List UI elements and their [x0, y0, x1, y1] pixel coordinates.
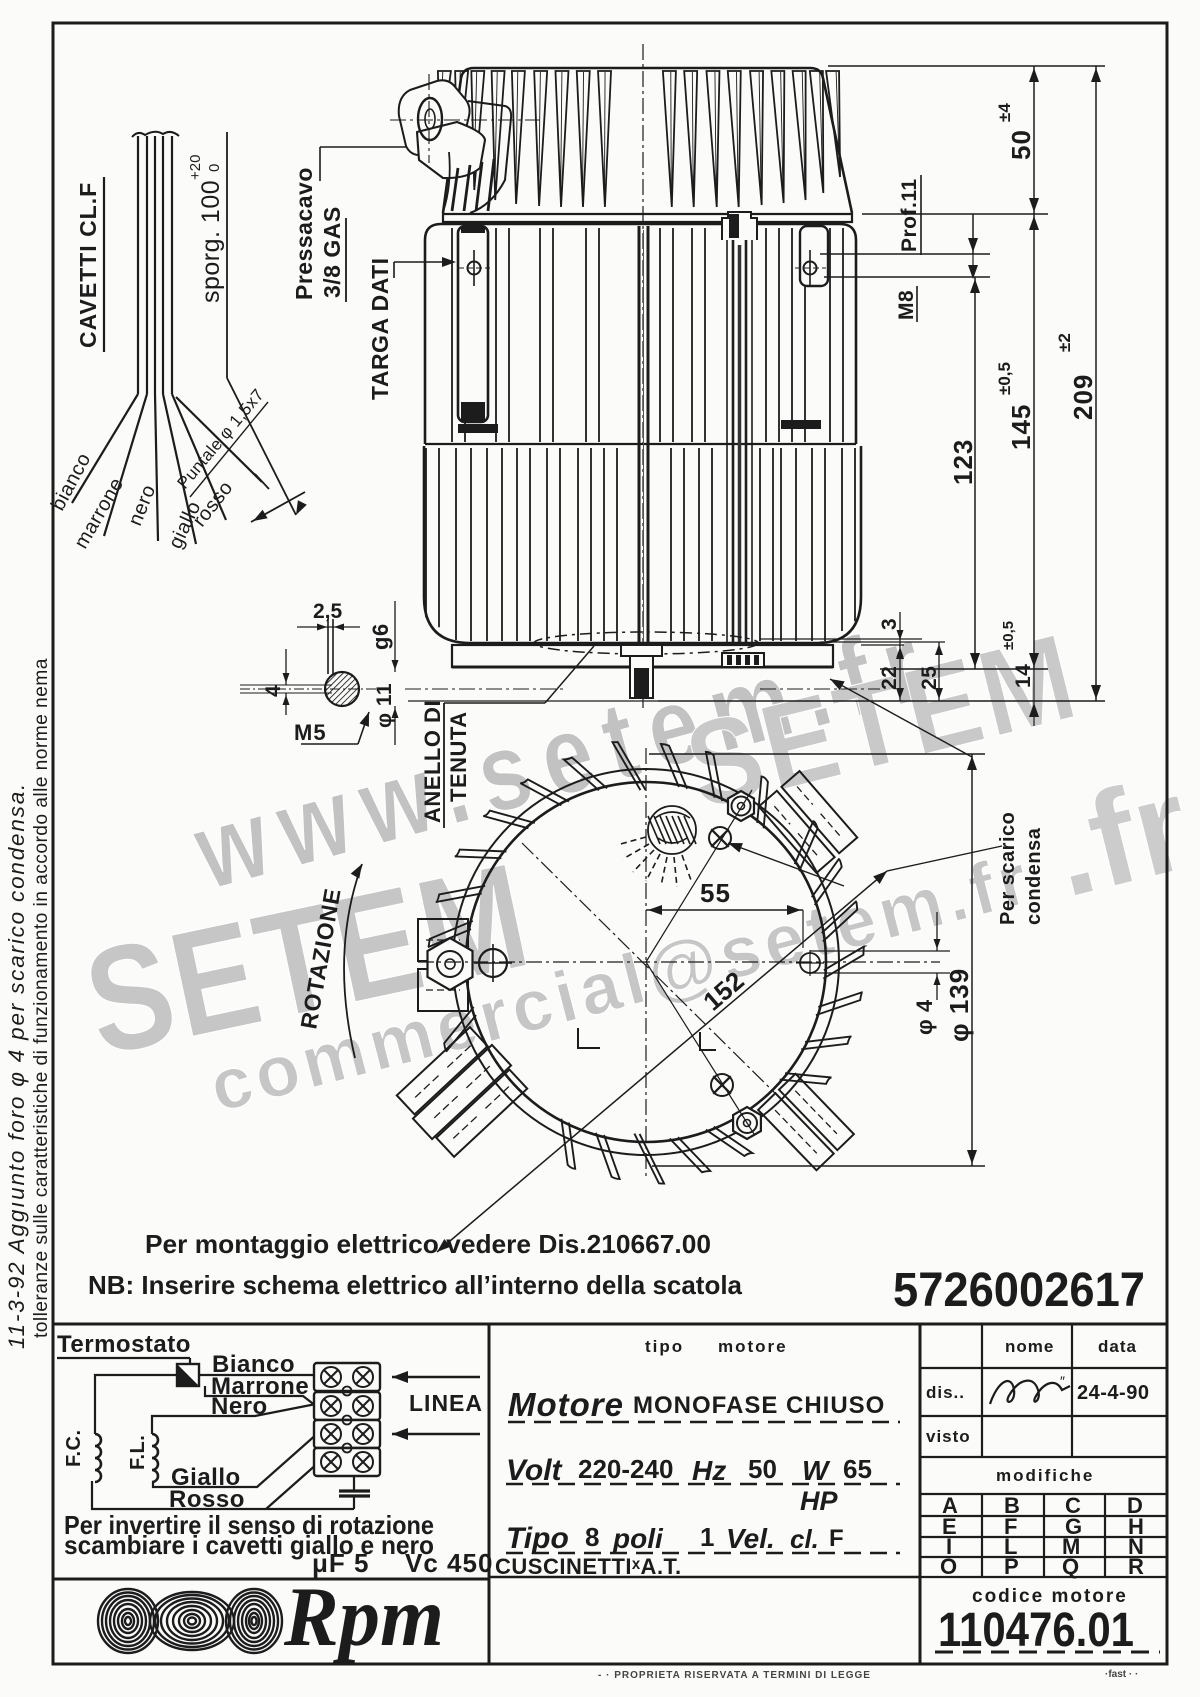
svg-text:CUSCINETTIˣA.T.: CUSCINETTIˣA.T. — [495, 1554, 682, 1579]
svg-text:145: 145 — [1006, 404, 1036, 450]
svg-text:φ 11: φ 11 — [373, 683, 396, 728]
svg-text:O: O — [940, 1554, 957, 1579]
svg-text:Hz: Hz — [692, 1455, 726, 1486]
svg-text:φ 139: φ 139 — [944, 968, 974, 1042]
svg-text:24-4-90: 24-4-90 — [1077, 1382, 1149, 1404]
svg-text:cl.: cl. — [790, 1524, 819, 1554]
svg-text:Termostato: Termostato — [57, 1331, 191, 1358]
svg-text:P: P — [1004, 1554, 1019, 1579]
svg-text:65: 65 — [843, 1454, 872, 1484]
svg-text:dis..: dis.. — [926, 1383, 965, 1402]
svg-text:HP: HP — [800, 1486, 838, 1516]
svg-text:LINEA: LINEA — [409, 1390, 483, 1416]
svg-text:1: 1 — [700, 1522, 714, 1552]
svg-text:condensa: condensa — [1023, 827, 1045, 925]
svg-text:±4: ±4 — [995, 103, 1014, 122]
svg-text:TENUTA: TENUTA — [446, 711, 471, 802]
svg-text:55: 55 — [700, 878, 731, 908]
svg-text:209: 209 — [1068, 374, 1098, 420]
svg-text:Volt: Volt — [506, 1454, 564, 1487]
svg-text:motore: motore — [718, 1337, 788, 1356]
svg-text:CAVETTI CL.F: CAVETTI CL.F — [75, 182, 101, 348]
svg-text:φ 4: φ 4 — [912, 999, 937, 1035]
svg-text:±0,5: ±0,5 — [1000, 621, 1017, 650]
svg-text:tolleranze sulle caratteristic: tolleranze sulle caratteristiche di funz… — [31, 658, 52, 1338]
svg-text:Tipo: Tipo — [506, 1522, 569, 1555]
svg-text:0: 0 — [206, 164, 223, 172]
svg-text:TARGA DATI: TARGA DATI — [367, 257, 393, 400]
svg-text:Motore: Motore — [508, 1386, 624, 1423]
svg-text:″: ″ — [1060, 1373, 1065, 1389]
svg-text:MONOFASE CHIUSO: MONOFASE CHIUSO — [633, 1392, 885, 1419]
svg-text:+20: +20 — [187, 155, 204, 180]
svg-text:M8: M8 — [895, 290, 918, 320]
svg-text:·fast · ·: ·fast · · — [1105, 1669, 1138, 1680]
svg-text:NB: Inserire schema elettrico: NB: Inserire schema elettrico all’intern… — [88, 1270, 743, 1300]
svg-text:Nero: Nero — [211, 1393, 268, 1420]
svg-text:tipo: tipo — [645, 1337, 684, 1356]
svg-text:sporg. 100: sporg. 100 — [197, 180, 225, 303]
svg-text:F.C.: F.C. — [63, 1429, 85, 1467]
svg-text:F: F — [829, 1525, 844, 1552]
svg-text:modifiche: modifiche — [996, 1466, 1094, 1485]
svg-text:Prof.11: Prof.11 — [898, 178, 921, 252]
svg-text:110476.01: 110476.01 — [938, 1604, 1134, 1657]
svg-text:Rpm: Rpm — [283, 1570, 444, 1664]
svg-text:±0,5: ±0,5 — [995, 362, 1014, 395]
svg-text:scambiare i cavetti giallo e n: scambiare i cavetti giallo e nero — [64, 1530, 434, 1560]
svg-text:22: 22 — [878, 666, 901, 690]
svg-text:±2: ±2 — [1055, 333, 1074, 352]
svg-text:M5: M5 — [294, 720, 327, 745]
svg-text:14: 14 — [1012, 664, 1035, 688]
svg-text:- · PROPRIETA RISERVATA A TE: - · PROPRIETA RISERVATA A TERMINI DI LEG… — [598, 1670, 871, 1681]
svg-text:Q: Q — [1062, 1554, 1079, 1579]
svg-text:Per scarico: Per scarico — [997, 812, 1019, 925]
svg-text:123: 123 — [948, 439, 978, 485]
svg-text:3/8 GAS: 3/8 GAS — [319, 206, 345, 298]
svg-text:50: 50 — [1006, 129, 1036, 160]
svg-text:Vel.: Vel. — [726, 1523, 775, 1554]
svg-text:nome: nome — [1005, 1337, 1054, 1356]
svg-text:data: data — [1098, 1337, 1137, 1356]
svg-text:F.L.: F.L. — [127, 1435, 149, 1470]
svg-text:ANELLO DI: ANELLO DI — [420, 700, 445, 823]
svg-text:2,5: 2,5 — [313, 600, 343, 623]
svg-text:25: 25 — [918, 666, 941, 690]
svg-text:220-240: 220-240 — [578, 1454, 673, 1484]
svg-text:poli: poli — [612, 1523, 664, 1554]
svg-text:R: R — [1128, 1554, 1144, 1579]
svg-text:4: 4 — [262, 685, 285, 697]
svg-text:W: W — [802, 1455, 831, 1486]
svg-text:visto: visto — [926, 1427, 971, 1446]
svg-text:g6: g6 — [368, 623, 393, 650]
svg-text:50: 50 — [748, 1454, 777, 1484]
svg-text:Rosso: Rosso — [169, 1486, 245, 1513]
svg-text:11-3-92 Aggıunto foro φ 4 per: 11-3-92 Aggıunto foro φ 4 per scarico co… — [4, 782, 29, 1349]
svg-text:Per montaggio elettrico vedere: Per montaggio elettrico vedere Dis.21066… — [145, 1229, 711, 1259]
svg-text:3: 3 — [878, 618, 901, 630]
svg-text:5726002617: 5726002617 — [893, 1264, 1145, 1317]
svg-text:8: 8 — [585, 1522, 599, 1552]
svg-text:Pressacavo: Pressacavo — [291, 167, 317, 300]
